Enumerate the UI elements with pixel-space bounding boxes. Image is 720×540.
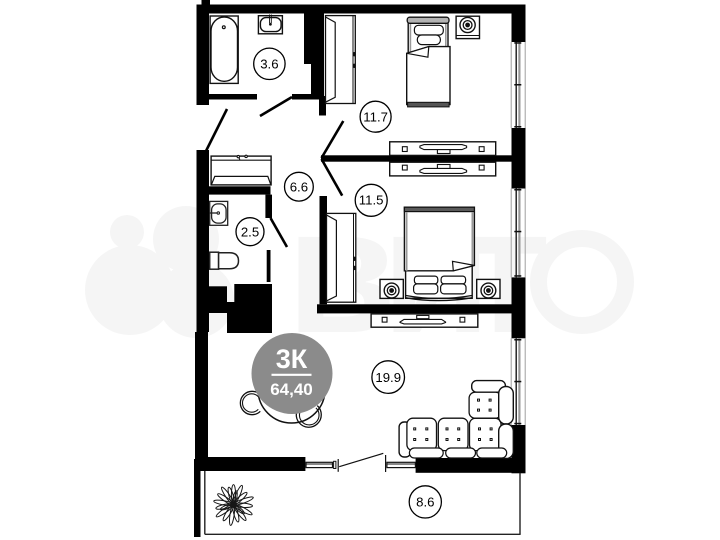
svg-text:8.6: 8.6 xyxy=(416,495,434,510)
svg-text:3К: 3К xyxy=(276,344,308,374)
svg-text:19.9: 19.9 xyxy=(375,370,401,385)
svg-text:3.6: 3.6 xyxy=(260,57,278,72)
svg-text:2.5: 2.5 xyxy=(241,224,259,239)
svg-text:6.6: 6.6 xyxy=(290,179,308,194)
svg-text:11.5: 11.5 xyxy=(359,193,384,208)
svg-text:11.7: 11.7 xyxy=(363,109,388,124)
svg-text:64,40: 64,40 xyxy=(270,380,313,399)
